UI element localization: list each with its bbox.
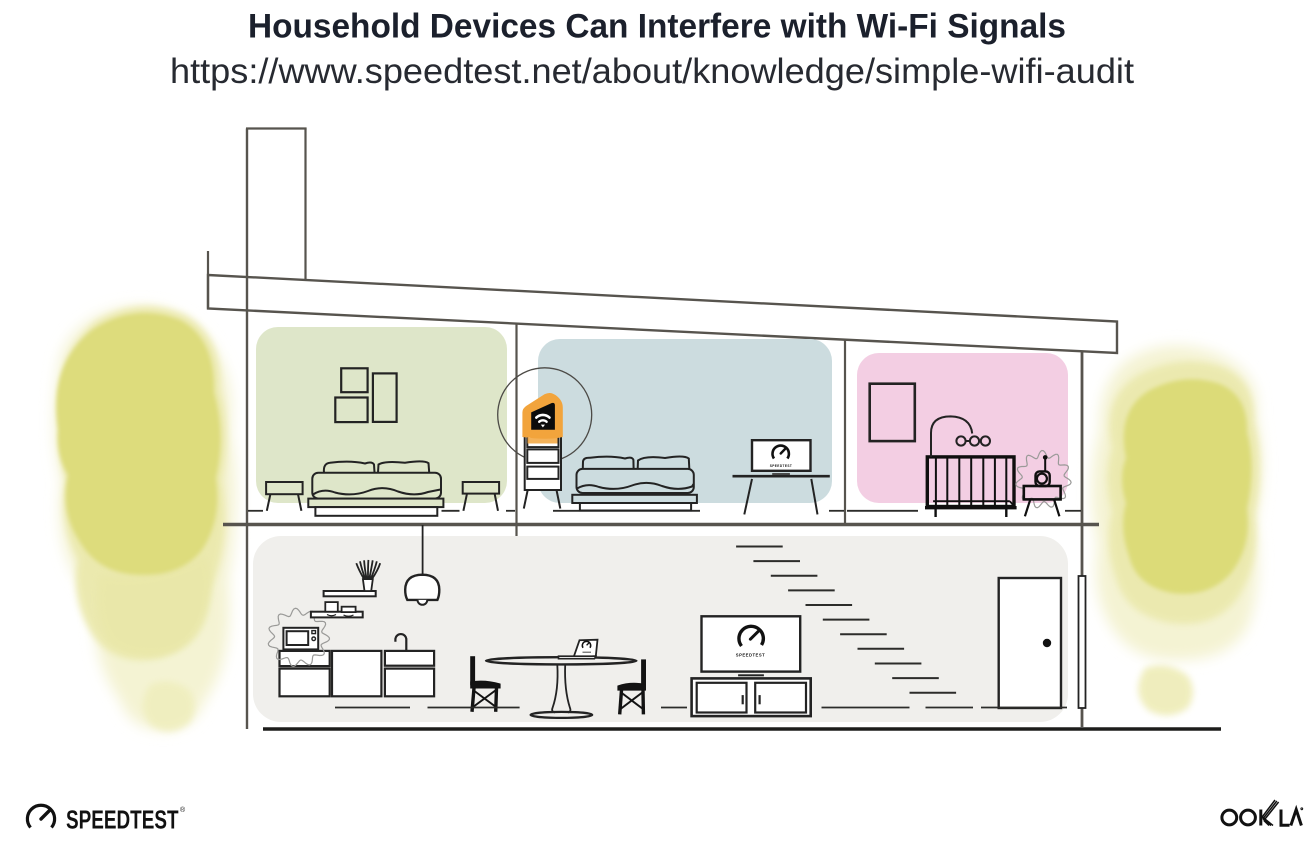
svg-text:SPEEDTEST: SPEEDTEST	[66, 805, 179, 835]
svg-text:SPEEDTEST: SPEEDTEST	[736, 652, 765, 657]
svg-text:Household Devices Can Interfer: Household Devices Can Interfere with Wi-…	[248, 8, 1066, 46]
svg-text:https://www.speedtest.net/abou: https://www.speedtest.net/about/knowledg…	[170, 52, 1134, 91]
svg-text:SPEEDTEST: SPEEDTEST	[770, 464, 793, 468]
svg-text:®: ®	[180, 806, 186, 814]
